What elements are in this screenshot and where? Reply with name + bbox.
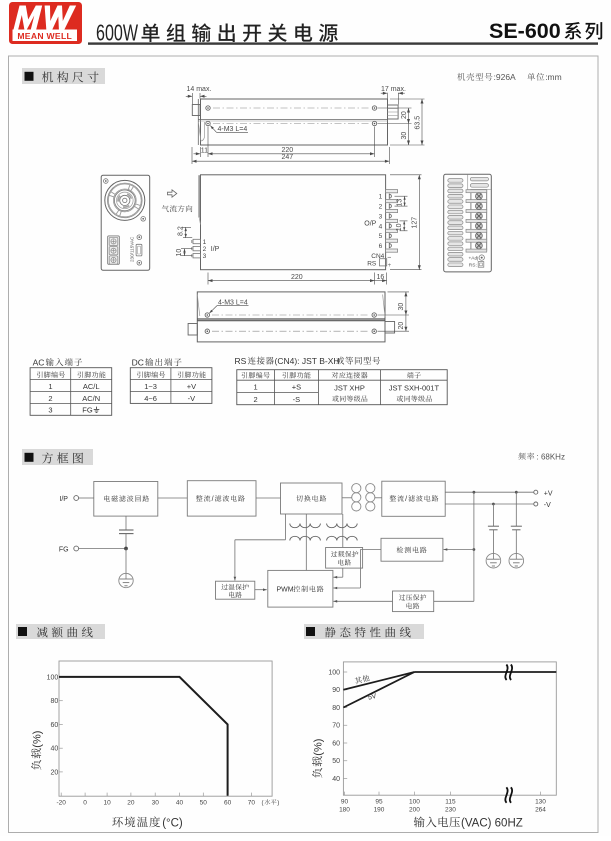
svg-text:100: 100: [47, 674, 59, 681]
svg-text:10: 10: [176, 249, 183, 257]
svg-text:40: 40: [51, 746, 59, 753]
svg-text:+: +: [388, 263, 392, 269]
svg-text:I/P: I/P: [211, 246, 220, 253]
svg-text:127: 127: [411, 217, 418, 229]
svg-text:(CN4): JST B-XH: (CN4): JST B-XH: [275, 356, 340, 366]
svg-text:200: 200: [409, 806, 420, 813]
svg-text:30: 30: [401, 132, 408, 140]
svg-text:4-M3 L=4: 4-M3 L=4: [218, 299, 248, 306]
svg-text:70: 70: [332, 723, 340, 730]
svg-text:60: 60: [332, 740, 340, 747]
svg-text:10: 10: [103, 799, 111, 806]
svg-text:2: 2: [379, 204, 383, 211]
svg-text:90: 90: [332, 687, 340, 694]
svg-text:220: 220: [291, 274, 303, 281]
svg-text:20: 20: [398, 322, 405, 330]
svg-text:/: /: [212, 496, 214, 503]
svg-text::mm: :mm: [545, 72, 562, 82]
svg-text:+Adj: +Adj: [469, 255, 479, 261]
svg-text:30: 30: [152, 799, 160, 806]
svg-text:10: 10: [396, 223, 403, 231]
svg-text:100: 100: [328, 669, 340, 676]
svg-text:2: 2: [203, 246, 207, 253]
svg-text:CN4: CN4: [371, 253, 384, 260]
svg-text:14 max.: 14 max.: [187, 86, 212, 93]
svg-text:2: 2: [48, 394, 52, 403]
svg-text:1: 1: [379, 194, 383, 201]
svg-text:(%): (%): [31, 731, 43, 748]
svg-text:80: 80: [51, 698, 59, 705]
svg-text:90: 90: [341, 798, 349, 805]
svg-text:): ): [277, 799, 279, 806]
svg-text:-20: -20: [56, 799, 66, 806]
svg-text:4~6: 4~6: [144, 394, 157, 403]
svg-text:80: 80: [332, 705, 340, 712]
svg-text:230/115VAC: 230/115VAC: [130, 236, 135, 262]
svg-text:220: 220: [282, 147, 294, 154]
svg-text:50: 50: [332, 758, 340, 765]
svg-text:-V: -V: [544, 502, 551, 509]
svg-text:4-M3 L=4: 4-M3 L=4: [218, 126, 248, 133]
svg-text:30: 30: [398, 303, 405, 311]
svg-text:63.5: 63.5: [414, 116, 421, 130]
svg-text:264: 264: [535, 806, 546, 813]
svg-text:(°C): (°C): [162, 817, 183, 829]
svg-text:70: 70: [248, 799, 256, 806]
svg-text:(VAC) 60HZ: (VAC) 60HZ: [461, 817, 523, 829]
svg-text:3: 3: [203, 253, 207, 260]
svg-text:SE-600: SE-600: [489, 19, 561, 43]
svg-text:DC: DC: [132, 357, 144, 367]
svg-text:JST SXH-001T: JST SXH-001T: [389, 383, 440, 392]
svg-text::926A: :926A: [494, 72, 517, 82]
svg-text:3: 3: [48, 406, 52, 415]
svg-text:20: 20: [51, 769, 59, 776]
svg-text:+V: +V: [544, 490, 553, 497]
svg-text:: 68KHz: : 68KHz: [537, 452, 565, 461]
svg-text:4: 4: [379, 223, 383, 230]
svg-text:40: 40: [176, 799, 184, 806]
svg-text:247: 247: [282, 154, 294, 161]
svg-text:I/P: I/P: [59, 496, 68, 503]
svg-text:1: 1: [254, 383, 258, 392]
svg-text:MEAN WELL: MEAN WELL: [17, 31, 72, 41]
svg-text:AC: AC: [33, 357, 45, 367]
svg-text:8.2: 8.2: [177, 226, 184, 236]
svg-text:FG: FG: [59, 546, 69, 553]
svg-text:50: 50: [200, 799, 208, 806]
svg-text:0: 0: [83, 799, 87, 806]
svg-text:+V: +V: [187, 382, 196, 391]
svg-text:PWM: PWM: [277, 587, 294, 594]
svg-text:16: 16: [377, 274, 385, 281]
svg-text:5: 5: [379, 233, 383, 240]
svg-text:1: 1: [203, 239, 207, 246]
svg-text:230: 230: [445, 806, 456, 813]
svg-text:FG: FG: [82, 406, 93, 415]
svg-text:1~3: 1~3: [144, 382, 157, 391]
svg-text:40: 40: [332, 776, 340, 783]
svg-text:115: 115: [445, 798, 456, 805]
svg-text:6: 6: [379, 243, 383, 250]
svg-text:AC/L: AC/L: [83, 382, 100, 391]
svg-text:RS: RS: [367, 261, 377, 268]
svg-text:60: 60: [51, 722, 59, 729]
svg-text:-V: -V: [188, 394, 196, 403]
svg-text:1: 1: [48, 382, 52, 391]
svg-text:190: 190: [374, 806, 385, 813]
svg-text:O/P: O/P: [364, 220, 376, 227]
svg-text:20: 20: [127, 799, 135, 806]
svg-text:95: 95: [375, 798, 383, 805]
svg-text:20: 20: [401, 111, 408, 119]
svg-text:2: 2: [254, 395, 258, 404]
svg-text:+S: +S: [292, 383, 301, 392]
svg-text:JST XHP: JST XHP: [334, 383, 365, 392]
svg-text:(%): (%): [312, 739, 324, 756]
svg-text:130: 130: [535, 798, 546, 805]
svg-text:-S: -S: [293, 395, 301, 404]
svg-text:3: 3: [379, 213, 383, 220]
svg-text:RS:: RS:: [469, 262, 477, 268]
svg-text:180: 180: [339, 806, 350, 813]
svg-text:60: 60: [224, 799, 232, 806]
svg-text:RS: RS: [235, 356, 247, 366]
svg-text:11: 11: [201, 148, 208, 155]
svg-text:13: 13: [397, 199, 404, 207]
svg-text:600W: 600W: [96, 19, 139, 45]
svg-text:AC/N: AC/N: [82, 394, 100, 403]
svg-text:/: /: [405, 496, 407, 503]
svg-text:100: 100: [409, 798, 420, 805]
